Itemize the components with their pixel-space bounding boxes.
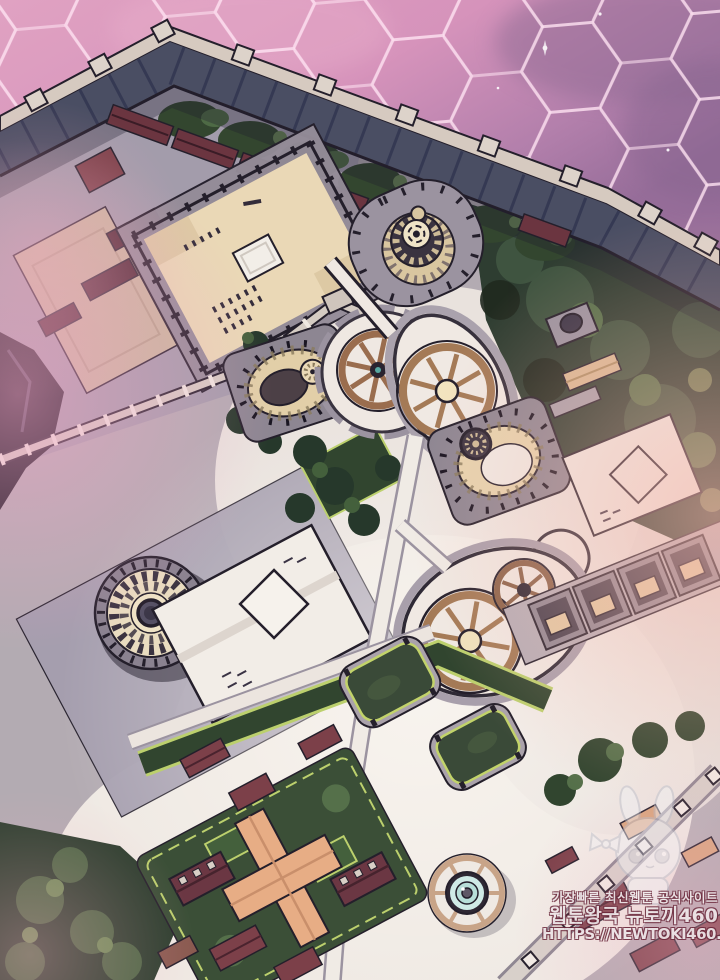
watermark-line1: 가장빠른 최신웹툰 공식사이트 xyxy=(542,891,718,905)
webtoon-panel: 가장빠른 최신웹툰 공식사이트 웹툰왕국 뉴토끼460 HTTPS://NEWT… xyxy=(0,0,720,980)
watermark-url: HTTPS://NEWTOKI460.COM xyxy=(542,926,718,942)
site-watermark: 가장빠른 최신웹툰 공식사이트 웹툰왕국 뉴토끼460 HTTPS://NEWT… xyxy=(542,891,718,942)
estate-scene xyxy=(0,0,720,980)
watermark-line2: 웹툰왕국 뉴토끼460 xyxy=(542,906,718,927)
